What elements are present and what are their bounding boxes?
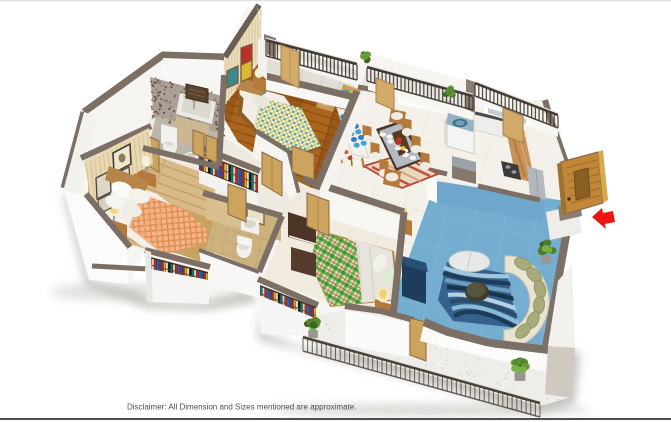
svg-text:Disclaimer: All Dimension and: Disclaimer: All Dimension and Sizes ment… xyxy=(127,403,356,412)
